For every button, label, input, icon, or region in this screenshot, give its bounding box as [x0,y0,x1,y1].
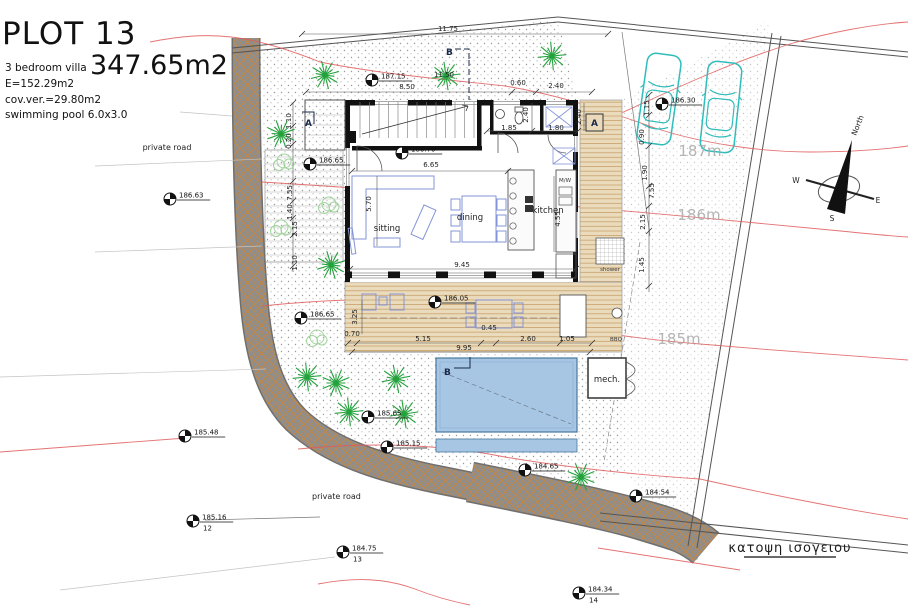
outdoor-sink-icon [612,308,622,318]
kitchen-label: kitchen [532,206,563,216]
section-mark-b-bottom: B [444,368,451,378]
dimension-label: 2.40 [548,82,564,90]
spot-elevation-value: 186.30 [671,97,696,105]
private-road-label-top: private road [143,143,192,152]
dimension-label: 9.45 [454,261,470,269]
villa-pool-size: swimming pool 6.0x3.0 [5,109,127,121]
spot-elevation-value: 186.70 [411,146,436,154]
pool-overflow-channel [436,439,577,452]
dimension-label: 7.55 [286,185,294,201]
plot-area: 347.65m2 [90,50,228,81]
dimension-label: 11.75 [438,25,458,33]
dimension-label: 2.15 [639,214,647,230]
villa-type: 3 bedroom villa [5,62,87,74]
dimension-label: 2.40 [522,107,530,123]
dimension-label: 0.20 [285,133,293,149]
spot-elevation-value: 186.65 [310,311,335,319]
contour-elevation-label: 185m [657,330,700,348]
survey-point-number: 13 [353,556,362,564]
spot-elevation-value: 184.65 [534,463,559,471]
private-road-label-bottom: private road [312,492,361,501]
dimension-label: 1.90 [641,165,649,181]
spot-elevation-value: 184.34 [588,586,613,594]
dimension-label: 1.40 [286,204,294,220]
spot-elevation-value: 187.15 [381,73,406,81]
spot-elevation-value: 186.05 [444,295,469,303]
villa-e-area: E=152.29m2 [5,78,74,90]
mech-label: mech. [594,375,620,385]
south-label: S [830,214,835,223]
shower-label: shower [600,267,621,273]
plot-title: PLOT 13 [2,16,137,52]
dimension-label: 3.25 [351,309,359,325]
dimension-label: 0.45 [481,324,497,332]
section-mark-a-left: A [305,119,312,129]
dimension-label: 0.90 [638,129,646,145]
survey-point-number: 14 [589,597,598,605]
dimension-label: 1.15 [643,100,651,116]
dimension-label: 1.80 [548,124,564,132]
dimension-label: 9.95 [456,344,472,352]
survey-point-number: 12 [203,525,212,533]
dimension-label: 8.50 [399,83,415,91]
dimension-label: 1.05 [559,335,575,343]
spot-elevation-value: 186.63 [179,192,204,200]
contour-elevation-label: 187m [678,142,721,160]
west-label: W [792,176,800,185]
east-label: E [876,196,881,205]
dining-label: dining [457,213,483,223]
dimension-label: 1.45 [638,257,646,273]
dimension-label: 0.60 [510,79,526,87]
hob-icon [525,196,533,203]
dimension-label: 1.85 [501,124,517,132]
microwave-label: M/W [559,178,572,184]
dimension-label: 1.10 [291,255,299,271]
dimension-label: 6.65 [423,161,439,169]
section-mark-a-right: A [591,119,598,129]
caption-text: κατοψη ισογειου [728,541,851,556]
contour-elevation-label: 186m [677,206,720,224]
sitting-label: sitting [374,224,401,234]
spot-elevation-value: 185.48 [194,429,219,437]
outdoor-shower [596,238,624,264]
drawing-caption: κατοψη ισογειου [728,541,851,557]
site-plan-drawing: B A A B 11.7511.508.500.602.402.402.401.… [0,0,908,607]
dimension-label: 0.70 [344,330,360,338]
dimension-label: 2.15 [291,221,299,237]
spot-elevation-value: 185.16 [202,514,227,522]
dimension-label: 7.55 [648,183,656,199]
dimension-label: 1.10 [285,113,293,129]
villa-cov-ver: cov.ver.=29.80m2 [5,94,101,106]
dimension-label: 2.60 [520,335,536,343]
spot-elevation-value: 185.15 [396,440,421,448]
bbq-label: BBQ [610,337,623,343]
dimension-label: 2.40 [575,109,583,125]
dimension-label: 5.70 [365,196,373,212]
dimension-label: 11.50 [434,71,454,79]
dimension-label: 5.15 [415,335,431,343]
section-mark-b-top: B [446,48,453,58]
spot-elevation-value: 184.75 [352,545,377,553]
spot-elevation-value: 184.54 [645,489,670,497]
spot-elevation-value: 185.65 [377,410,402,418]
spot-elevation-value: 186.65 [319,157,344,165]
